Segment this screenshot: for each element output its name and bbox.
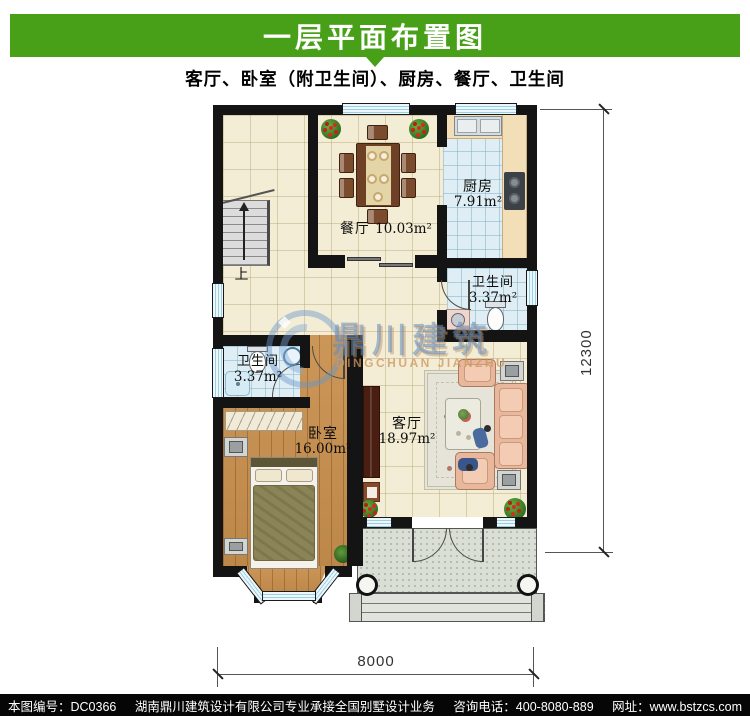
room-list-subtitle: 客厅、卧室（附卫生间）、厨房、餐厅、卫生间 — [0, 66, 750, 91]
floorplan-page: 一层平面布置图 客厅、卧室（附卫生间）、厨房、餐厅、卫生间 — [0, 0, 750, 716]
wall-segment — [308, 255, 345, 268]
dimension-line-right — [603, 109, 604, 553]
three-seat-sofa — [494, 383, 530, 469]
chair — [339, 153, 354, 173]
step-line — [349, 603, 545, 604]
wall-segment — [437, 113, 447, 147]
person-head — [466, 464, 473, 471]
footer-bar: 本图编号：DC0366 湖南鼎川建筑设计有限公司专业承接全国别墅设计业务 咨询电… — [0, 694, 750, 716]
pillow — [255, 469, 282, 482]
kitchen-sink — [454, 116, 502, 136]
entry-door-leaf — [482, 528, 484, 562]
drawing-number: 本图编号：DC0366 — [8, 696, 116, 715]
company-slogan: 湖南鼎川建筑设计有限公司专业承接全国别墅设计业务 — [135, 696, 435, 715]
dining-table — [356, 143, 400, 207]
pillow — [286, 469, 313, 482]
step-line — [349, 612, 545, 613]
table-cups — [456, 431, 461, 436]
chair — [401, 153, 416, 173]
chair — [401, 178, 416, 198]
page-title: 一层平面布置图 — [263, 16, 487, 56]
window — [212, 283, 224, 318]
duvet — [253, 485, 315, 561]
extension-line — [533, 647, 534, 687]
phone-number: 咨询电话：400-8080-889 — [453, 696, 593, 715]
sliding-door — [347, 257, 381, 261]
entry-door-leaf — [412, 528, 414, 562]
window — [342, 103, 410, 115]
nightstand — [224, 437, 248, 457]
porch-column — [356, 574, 378, 596]
sink-basin — [457, 119, 477, 133]
table-flowers — [458, 409, 469, 420]
extension-line — [217, 647, 218, 687]
stair-up-label: 上 — [232, 265, 252, 283]
porch-slab — [357, 528, 537, 593]
window — [366, 517, 392, 528]
wall-segment — [213, 397, 310, 408]
chair — [339, 178, 354, 198]
side-cabinet — [363, 482, 380, 502]
window — [455, 103, 517, 115]
bed — [250, 457, 318, 569]
headboard — [251, 458, 317, 467]
window — [496, 517, 516, 528]
extension-line — [540, 109, 612, 110]
kitchen-label: 厨房 7.91m² — [444, 179, 512, 211]
cabinet-panel — [367, 487, 377, 498]
sliding-door — [379, 263, 413, 267]
living-label: 客厅 18.97m² — [374, 416, 440, 448]
nightstand — [224, 538, 248, 555]
dimension-value-right: 12300 — [578, 296, 595, 376]
bath-left-label: 卫生间 3.37m² — [226, 355, 290, 385]
person-head — [484, 425, 491, 432]
stair-arrow-head — [239, 202, 249, 211]
bay-window — [262, 591, 316, 601]
bedroom-label: 卧室 16.00m² — [288, 426, 358, 458]
stair-arrow — [243, 210, 245, 260]
step-side-block — [349, 593, 362, 622]
wall-segment — [437, 258, 537, 268]
watermark-en-text: DINGCHUAN JIANZHU — [336, 356, 507, 370]
entry-steps — [349, 593, 545, 622]
window — [212, 348, 224, 398]
end-table — [497, 470, 521, 490]
title-banner: 一层平面布置图 — [10, 14, 740, 57]
watermark: 鼎川建筑 DINGCHUAN JIANZHU — [250, 300, 540, 392]
dimension-line-bottom — [217, 674, 534, 675]
website-url: 网址：www.bstzcs.com — [612, 696, 742, 715]
step-side-block — [531, 593, 544, 622]
dimension-value-bottom: 8000 — [352, 653, 400, 670]
potted-plant — [409, 119, 429, 139]
dining-label: 餐厅 10.03m² — [330, 219, 442, 238]
potted-plant — [321, 119, 341, 139]
chair — [367, 125, 388, 140]
sink-basin — [480, 119, 500, 133]
porch-column — [517, 574, 539, 596]
wall-segment — [308, 115, 318, 265]
